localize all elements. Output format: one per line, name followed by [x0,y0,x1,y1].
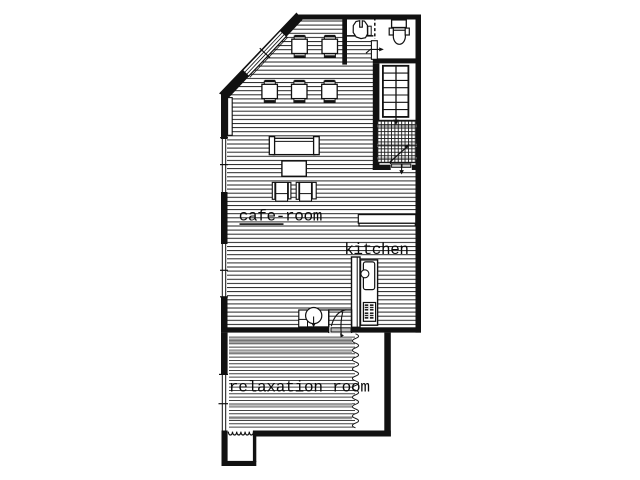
svg-text:cafe-room: cafe-room [239,208,322,226]
svg-text:kitchen: kitchen [344,241,408,259]
svg-text:relaxation room: relaxation room [229,378,370,396]
